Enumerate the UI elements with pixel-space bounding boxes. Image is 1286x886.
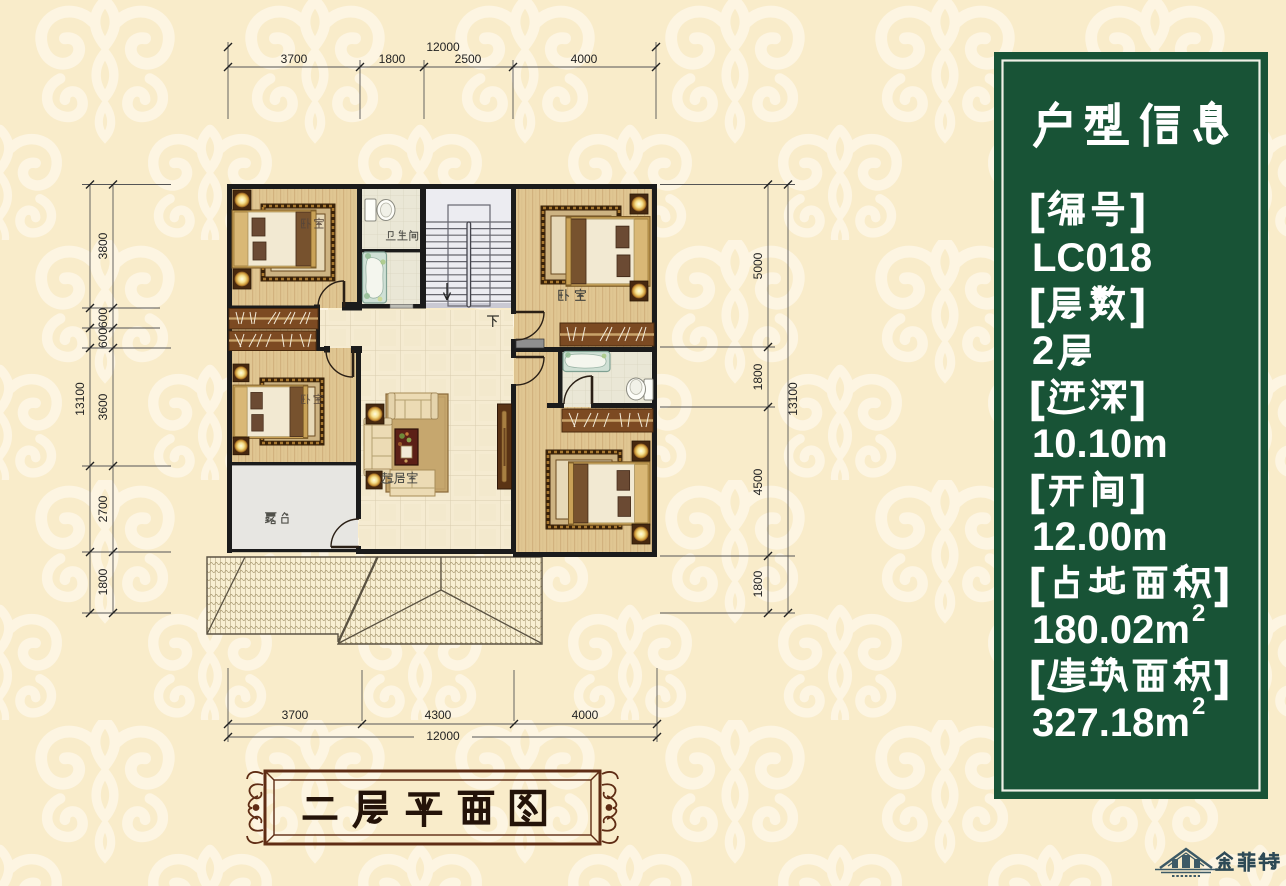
svg-text:12000: 12000: [426, 729, 460, 743]
svg-text:4000: 4000: [571, 52, 598, 66]
svg-text:600: 600: [96, 328, 110, 348]
svg-text:180.02m: 180.02m: [1032, 608, 1190, 652]
svg-text:13100: 13100: [73, 382, 87, 416]
svg-text:[: [: [1030, 281, 1044, 328]
svg-text:2: 2: [1192, 693, 1205, 720]
svg-text:4000: 4000: [572, 708, 599, 722]
svg-text:1800: 1800: [751, 363, 765, 390]
svg-text:[: [: [1030, 560, 1044, 607]
svg-text:2: 2: [1032, 329, 1054, 373]
svg-text:4300: 4300: [425, 708, 452, 722]
svg-text:1800: 1800: [751, 570, 765, 597]
svg-text:4500: 4500: [751, 468, 765, 495]
svg-text:]: ]: [1215, 653, 1229, 700]
svg-text:2700: 2700: [96, 495, 110, 522]
svg-text:[: [: [1030, 467, 1044, 514]
svg-text:327.18m: 327.18m: [1032, 701, 1190, 745]
svg-text:]: ]: [1131, 281, 1145, 328]
svg-text:]: ]: [1131, 467, 1145, 514]
svg-text:3600: 3600: [96, 393, 110, 420]
svg-text:600: 600: [96, 308, 110, 328]
svg-text:]: ]: [1131, 374, 1145, 421]
svg-text:]: ]: [1215, 560, 1229, 607]
svg-text:3700: 3700: [281, 52, 308, 66]
svg-text:12.00m: 12.00m: [1032, 515, 1168, 559]
svg-text:1800: 1800: [96, 568, 110, 595]
svg-text:5000: 5000: [751, 252, 765, 279]
svg-text:3800: 3800: [96, 232, 110, 259]
svg-text:[: [: [1030, 653, 1044, 700]
svg-text:[: [: [1030, 186, 1044, 233]
svg-text:1800: 1800: [379, 52, 406, 66]
svg-text:]: ]: [1131, 186, 1145, 233]
svg-text:2: 2: [1192, 600, 1205, 627]
svg-text:[: [: [1030, 374, 1044, 421]
svg-text:13100: 13100: [786, 382, 800, 416]
svg-text:10.10m: 10.10m: [1032, 422, 1168, 466]
svg-text:2500: 2500: [455, 52, 482, 66]
svg-text:LC018: LC018: [1032, 236, 1152, 280]
svg-text:3700: 3700: [282, 708, 309, 722]
